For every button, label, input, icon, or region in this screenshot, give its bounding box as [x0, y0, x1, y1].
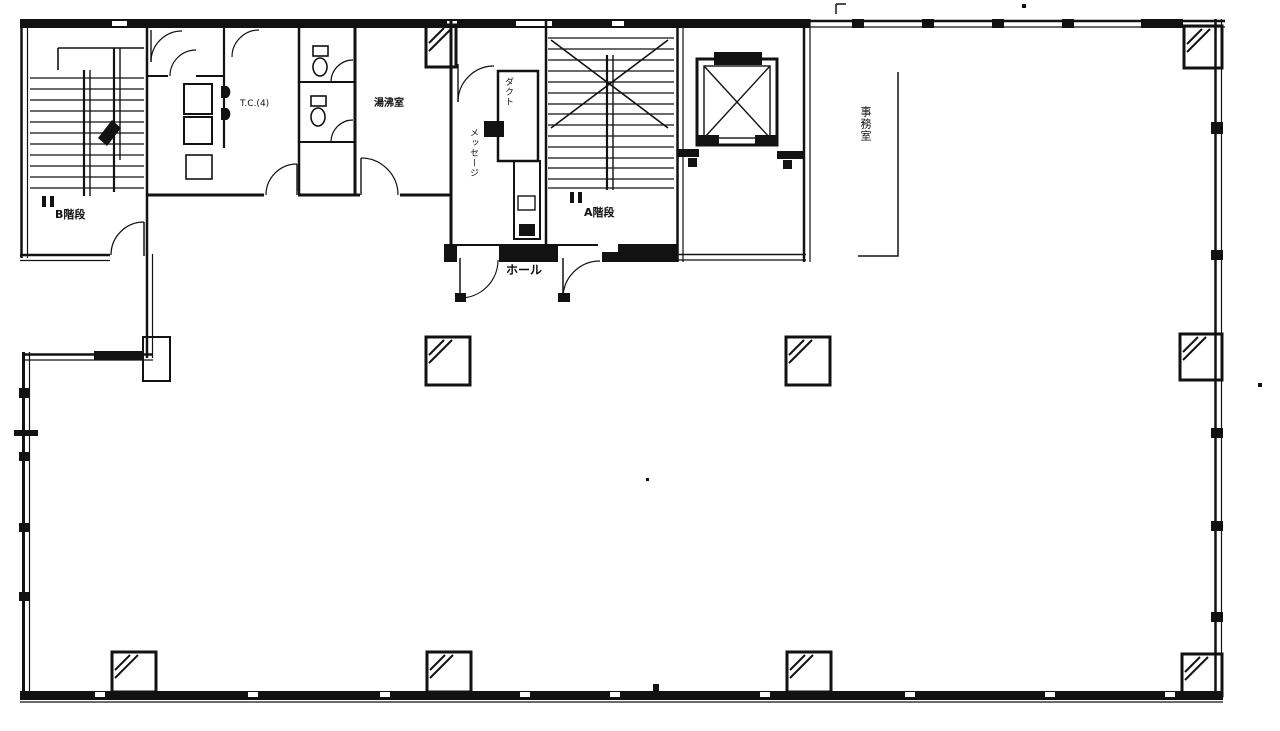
column [112, 652, 156, 692]
stair-a-label: A階段 [584, 207, 615, 218]
floor-plan-canvas: B階段 T.C.(4) 湯沸室 ダクト メッセージ A階段 ホール 事務室 [0, 0, 1280, 731]
toilet-icon [311, 96, 326, 106]
office-leader-line [858, 72, 898, 256]
urinal-icon [227, 108, 230, 120]
exterior-walls [14, 19, 1225, 702]
wc-stalls [299, 19, 355, 195]
stair-b [30, 48, 144, 207]
toilet-icon [313, 46, 328, 56]
washbasin [184, 84, 212, 114]
stair-a [546, 19, 674, 258]
urinal-icon [221, 86, 227, 98]
washbasin [184, 117, 212, 144]
toilet-block [147, 19, 452, 199]
duct-shaft-label: ダクト [503, 77, 512, 107]
fixture-block [484, 121, 504, 137]
hall-label: ホール [506, 264, 542, 276]
kitchenette-room [360, 19, 451, 258]
kitchenette-label: 湯沸室 [374, 99, 404, 109]
toilet-label: T.C.(4) [240, 100, 269, 109]
floor-plan-linework [0, 0, 1280, 731]
passage-label: メッセージ [468, 128, 477, 178]
office-label: 事務室 [860, 106, 871, 142]
toilet-icon [311, 108, 325, 126]
counter [186, 155, 212, 179]
elevator-door [714, 52, 762, 65]
column [426, 337, 470, 385]
column [427, 652, 471, 692]
toilet-icon [313, 58, 327, 76]
stair-b-label: B階段 [55, 209, 85, 220]
column [787, 652, 831, 692]
annotation-marks [646, 4, 1262, 481]
urinal-icon [221, 108, 227, 120]
urinal-icon [227, 86, 230, 98]
core-bottom-wall [444, 244, 806, 302]
column [786, 337, 830, 385]
structural-columns [112, 25, 1222, 696]
elevator-block [677, 19, 810, 262]
